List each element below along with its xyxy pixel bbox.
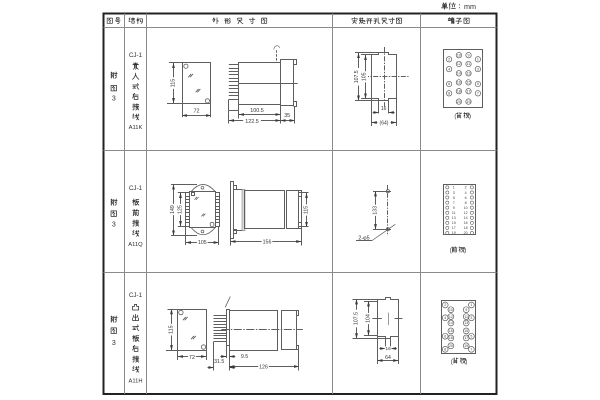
svg-text:7: 7 — [453, 201, 455, 205]
svg-text:11: 11 — [467, 62, 471, 66]
svg-text:14: 14 — [449, 321, 453, 325]
svg-text:(: ( — [454, 114, 456, 120]
svg-text:CJ-1: CJ-1 — [129, 185, 143, 192]
svg-text:122.5: 122.5 — [245, 119, 259, 125]
svg-text:4: 4 — [448, 67, 450, 71]
svg-text:17: 17 — [467, 89, 471, 93]
svg-text:11: 11 — [464, 315, 468, 319]
svg-text:12: 12 — [449, 315, 453, 319]
svg-text:1: 1 — [453, 186, 455, 190]
svg-text:9: 9 — [465, 308, 467, 312]
svg-text:8: 8 — [444, 348, 446, 352]
svg-text:9: 9 — [453, 206, 455, 210]
svg-text:14: 14 — [457, 72, 461, 76]
svg-text:3: 3 — [112, 340, 116, 347]
svg-text:100.5: 100.5 — [250, 108, 264, 114]
svg-text:2: 2 — [448, 58, 450, 62]
svg-text:6: 6 — [444, 334, 446, 338]
svg-text:8: 8 — [465, 201, 467, 205]
svg-text:115: 115 — [303, 206, 309, 214]
svg-text:16: 16 — [381, 106, 387, 112]
svg-text:31.5: 31.5 — [214, 359, 224, 365]
svg-text:107.5: 107.5 — [353, 312, 359, 325]
svg-text:35: 35 — [284, 113, 290, 119]
svg-text:15: 15 — [467, 81, 471, 85]
svg-text:19: 19 — [452, 231, 456, 235]
svg-text:CJ-1: CJ-1 — [129, 292, 143, 299]
svg-text:6: 6 — [465, 196, 467, 200]
svg-text:156: 156 — [263, 240, 272, 246]
svg-text:CJ-1: CJ-1 — [129, 52, 143, 59]
svg-text:13: 13 — [452, 216, 456, 220]
svg-text:18: 18 — [457, 89, 461, 93]
svg-text:64: 64 — [385, 355, 391, 361]
svg-text:13: 13 — [464, 321, 468, 325]
svg-text:19: 19 — [464, 344, 468, 348]
svg-text:16: 16 — [457, 81, 461, 85]
svg-text:126: 126 — [259, 364, 268, 370]
svg-text:): ) — [464, 248, 466, 254]
svg-text:115: 115 — [170, 79, 176, 88]
svg-text:10: 10 — [464, 206, 468, 210]
svg-text:19: 19 — [467, 100, 471, 104]
svg-text:18: 18 — [449, 336, 453, 340]
svg-text:4: 4 — [465, 191, 467, 195]
svg-text:10: 10 — [449, 308, 453, 312]
svg-text:): ) — [465, 359, 467, 365]
svg-text:20: 20 — [464, 231, 468, 235]
svg-text:9: 9 — [468, 53, 470, 57]
svg-text:13: 13 — [467, 72, 471, 76]
svg-text:15: 15 — [452, 221, 456, 225]
svg-text:3: 3 — [470, 316, 472, 320]
svg-text:20: 20 — [457, 100, 461, 104]
svg-text:3: 3 — [112, 222, 116, 229]
svg-text:18: 18 — [464, 226, 468, 230]
svg-text:12: 12 — [464, 211, 468, 215]
svg-text:8: 8 — [448, 92, 450, 96]
svg-text:1: 1 — [477, 58, 479, 62]
svg-text:2: 2 — [465, 186, 467, 190]
svg-text:2: 2 — [444, 303, 446, 307]
svg-text:A11K: A11K — [129, 125, 143, 131]
svg-text:104: 104 — [365, 314, 371, 323]
svg-text:115: 115 — [169, 325, 175, 334]
svg-text:125: 125 — [177, 205, 183, 214]
svg-text:11: 11 — [452, 211, 456, 215]
svg-text:105: 105 — [362, 72, 368, 81]
svg-text:105: 105 — [198, 240, 207, 246]
svg-text:4: 4 — [444, 316, 446, 320]
svg-text:A11H: A11H — [128, 379, 142, 385]
svg-text:17: 17 — [464, 336, 468, 340]
svg-text:3: 3 — [112, 96, 116, 103]
svg-text:): ) — [469, 114, 471, 120]
svg-text:mm: mm — [464, 2, 476, 11]
svg-text:133: 133 — [373, 206, 379, 215]
svg-text:72: 72 — [194, 109, 200, 115]
svg-text:12: 12 — [457, 62, 461, 66]
svg-text:16: 16 — [464, 221, 468, 225]
svg-text:(: ( — [450, 248, 452, 254]
svg-text:1: 1 — [470, 303, 472, 307]
svg-text:5: 5 — [453, 196, 455, 200]
svg-text:5: 5 — [470, 334, 472, 338]
svg-text:17: 17 — [452, 226, 456, 230]
svg-text:107.5: 107.5 — [354, 70, 360, 83]
svg-text:(: ( — [451, 359, 453, 365]
svg-text:7: 7 — [477, 92, 479, 96]
svg-text:A11Q: A11Q — [128, 242, 143, 248]
svg-text:10: 10 — [457, 53, 461, 57]
svg-text:7: 7 — [470, 348, 472, 352]
svg-text:5: 5 — [477, 82, 479, 86]
svg-text:16: 16 — [386, 346, 392, 351]
svg-text:(64): (64) — [380, 121, 389, 127]
svg-text:6: 6 — [448, 82, 450, 86]
svg-text:72: 72 — [189, 355, 195, 361]
svg-text:9.5: 9.5 — [241, 354, 248, 360]
svg-text:3: 3 — [453, 191, 455, 195]
svg-text:20: 20 — [449, 344, 453, 348]
svg-text:16: 16 — [449, 329, 453, 333]
svg-text:149: 149 — [170, 205, 176, 214]
svg-text:14: 14 — [464, 216, 468, 220]
svg-text:3: 3 — [477, 67, 479, 71]
svg-text:15: 15 — [464, 329, 468, 333]
